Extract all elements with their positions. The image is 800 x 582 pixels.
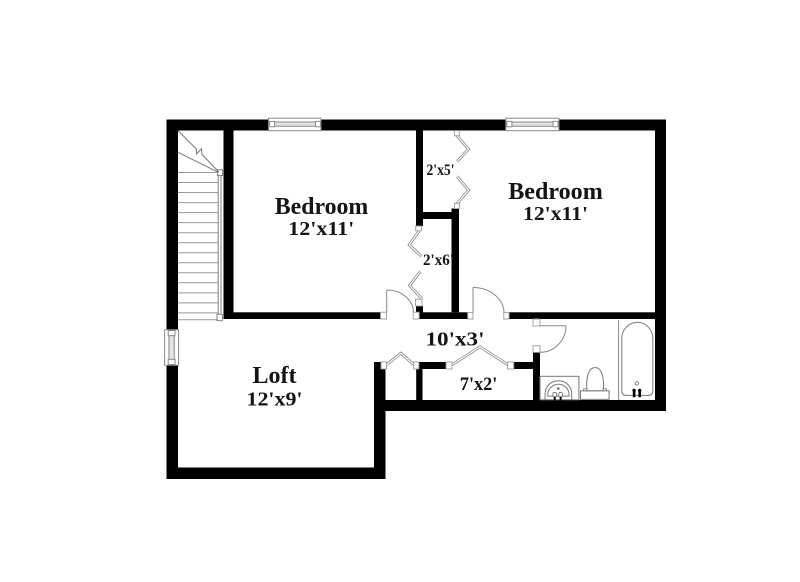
svg-text:2'x5': 2'x5' bbox=[427, 162, 455, 179]
svg-text:Bedroom: Bedroom bbox=[275, 194, 369, 220]
svg-text:10'x3': 10'x3' bbox=[426, 328, 485, 350]
svg-text:Loft: Loft bbox=[253, 363, 297, 389]
svg-text:7'x2': 7'x2' bbox=[460, 375, 498, 395]
svg-text:12'x11': 12'x11' bbox=[523, 204, 588, 225]
svg-text:12'x9': 12'x9' bbox=[247, 390, 303, 411]
svg-text:2'x6': 2'x6' bbox=[423, 252, 454, 269]
svg-text:Bedroom: Bedroom bbox=[508, 179, 603, 205]
svg-text:12'x11': 12'x11' bbox=[288, 219, 354, 240]
